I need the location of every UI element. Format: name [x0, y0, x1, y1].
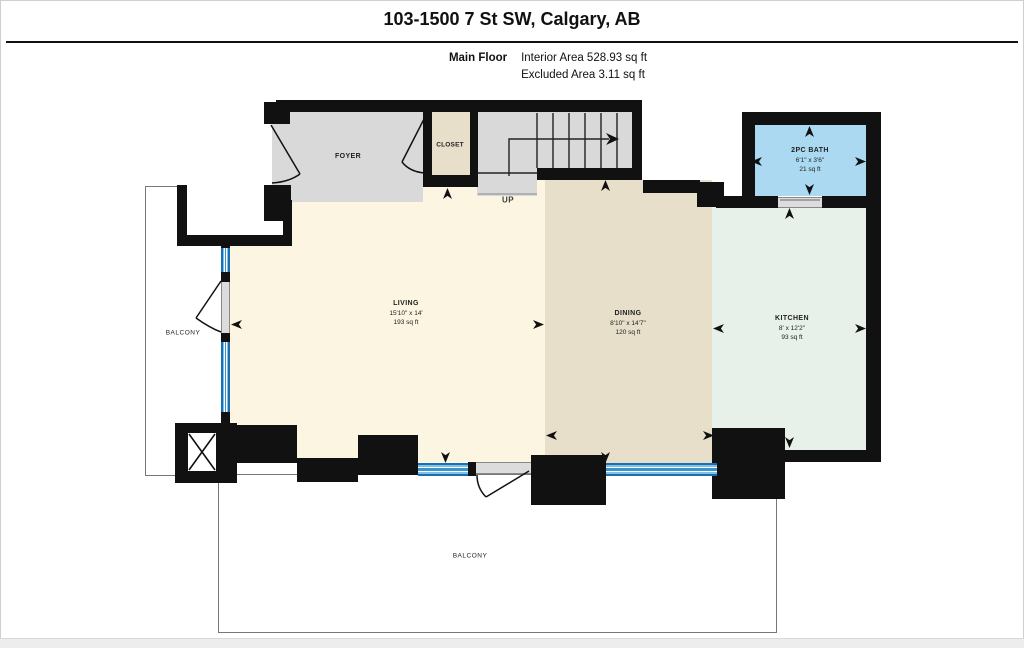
window-left-2 [221, 342, 230, 412]
door-balcony-bottom [476, 462, 531, 474]
wall-pillar-1 [531, 455, 606, 505]
window-left-1 [221, 248, 230, 272]
label-bath: 2PC BATH 6'1" x 3'6" 21 sq ft [791, 146, 829, 174]
label-closet: CLOSET [436, 141, 464, 150]
header-divider [6, 41, 1018, 43]
stairs-landing [477, 112, 537, 196]
label-balcony-left: BALCONY [166, 330, 201, 337]
wall-bottom-chunk [468, 462, 476, 476]
label-kitchen: KITCHEN 8' x 12'2" 93 sq ft [775, 314, 809, 342]
window-dining-bottom [606, 463, 717, 476]
floor-label: Main Floor [449, 50, 507, 84]
label-dining: DINING 8'10" x 14'7" 120 sq ft [610, 309, 646, 337]
wall-balcony-left-top [177, 185, 187, 242]
wall-top-corner [264, 102, 290, 124]
wall-right [866, 112, 881, 462]
column-xbox [186, 431, 218, 473]
wall-bottom-1 [237, 425, 297, 463]
page-title: 103-1500 7 St SW, Calgary, AB [0, 9, 1024, 30]
label-foyer: FOYER [335, 152, 361, 162]
stairs-treads [537, 112, 632, 168]
label-living: LIVING 15'10" x 14' 193 sq ft [389, 299, 422, 327]
wall-notch-bottom [177, 235, 292, 246]
wall-bath-left [742, 112, 755, 208]
page-bottom-edge [0, 638, 1024, 648]
window-living-bottom [418, 463, 468, 476]
wall-bath-bottom-right [822, 196, 868, 208]
floor-summary: Main Floor Interior Area 528.93 sq ft Ex… [0, 50, 1024, 84]
excluded-area: Excluded Area 3.11 sq ft [521, 67, 647, 84]
wall-pillar-0 [358, 435, 418, 475]
interior-area: Interior Area 528.93 sq ft [521, 50, 647, 67]
wall-top [276, 100, 642, 112]
door-bath-pocket [778, 197, 822, 208]
wall-closet-bottom [423, 175, 478, 187]
wall-stair-bottom [537, 168, 642, 180]
wall-step-1 [643, 180, 700, 193]
wall-left-b [221, 272, 230, 282]
label-stairs-up: UP [502, 196, 514, 205]
label-balcony-bottom: BALCONY [453, 553, 488, 560]
wall-bath-bottom-left [742, 196, 778, 208]
wall-bottom-2 [297, 458, 358, 482]
wall-bath-top [742, 112, 880, 125]
floor-plan-page: { "header": { "title": "103-1500 7 St SW… [0, 0, 1024, 648]
door-balcony-left [221, 282, 230, 333]
wall-pillar-2 [712, 428, 785, 499]
balcony-bottom-area [218, 474, 777, 633]
wall-kitchen-bottom [780, 450, 880, 462]
